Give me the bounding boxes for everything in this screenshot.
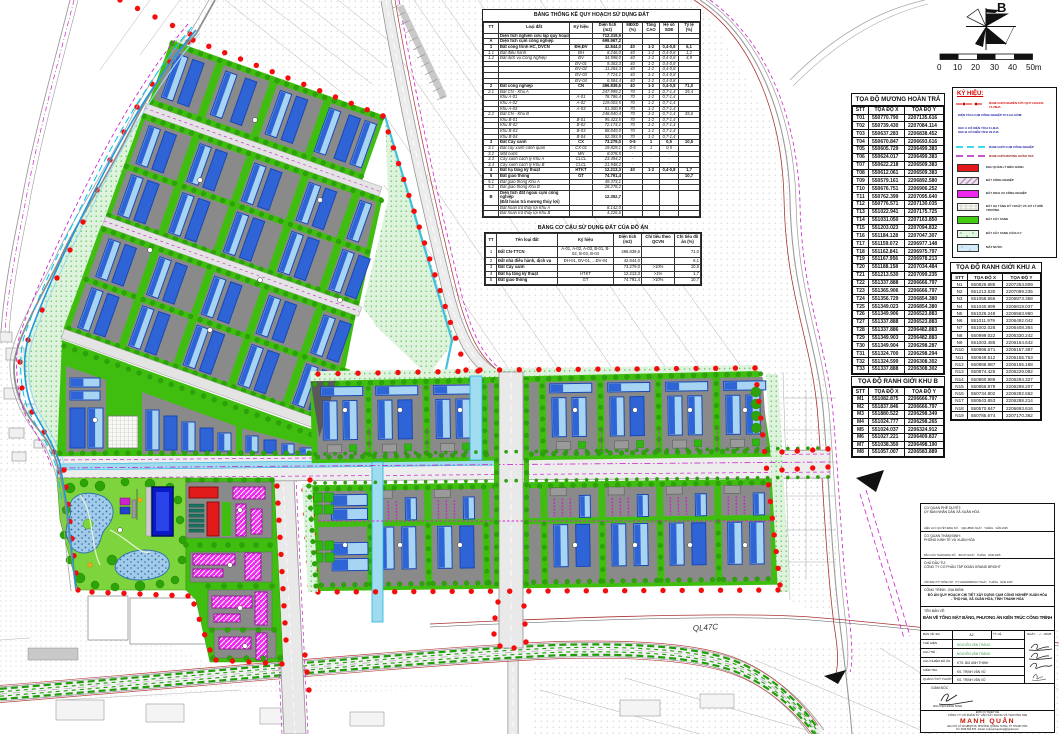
- svg-text:20: 20: [971, 63, 980, 72]
- svg-text:30: 30: [990, 63, 999, 72]
- svg-text:40: 40: [1008, 63, 1017, 72]
- svg-text:50m: 50m: [1026, 63, 1042, 72]
- svg-text:0: 0: [937, 63, 942, 72]
- svg-text:B: B: [997, 0, 1006, 15]
- svg-text:10: 10: [953, 63, 962, 72]
- svg-text:QL47C: QL47C: [693, 622, 719, 633]
